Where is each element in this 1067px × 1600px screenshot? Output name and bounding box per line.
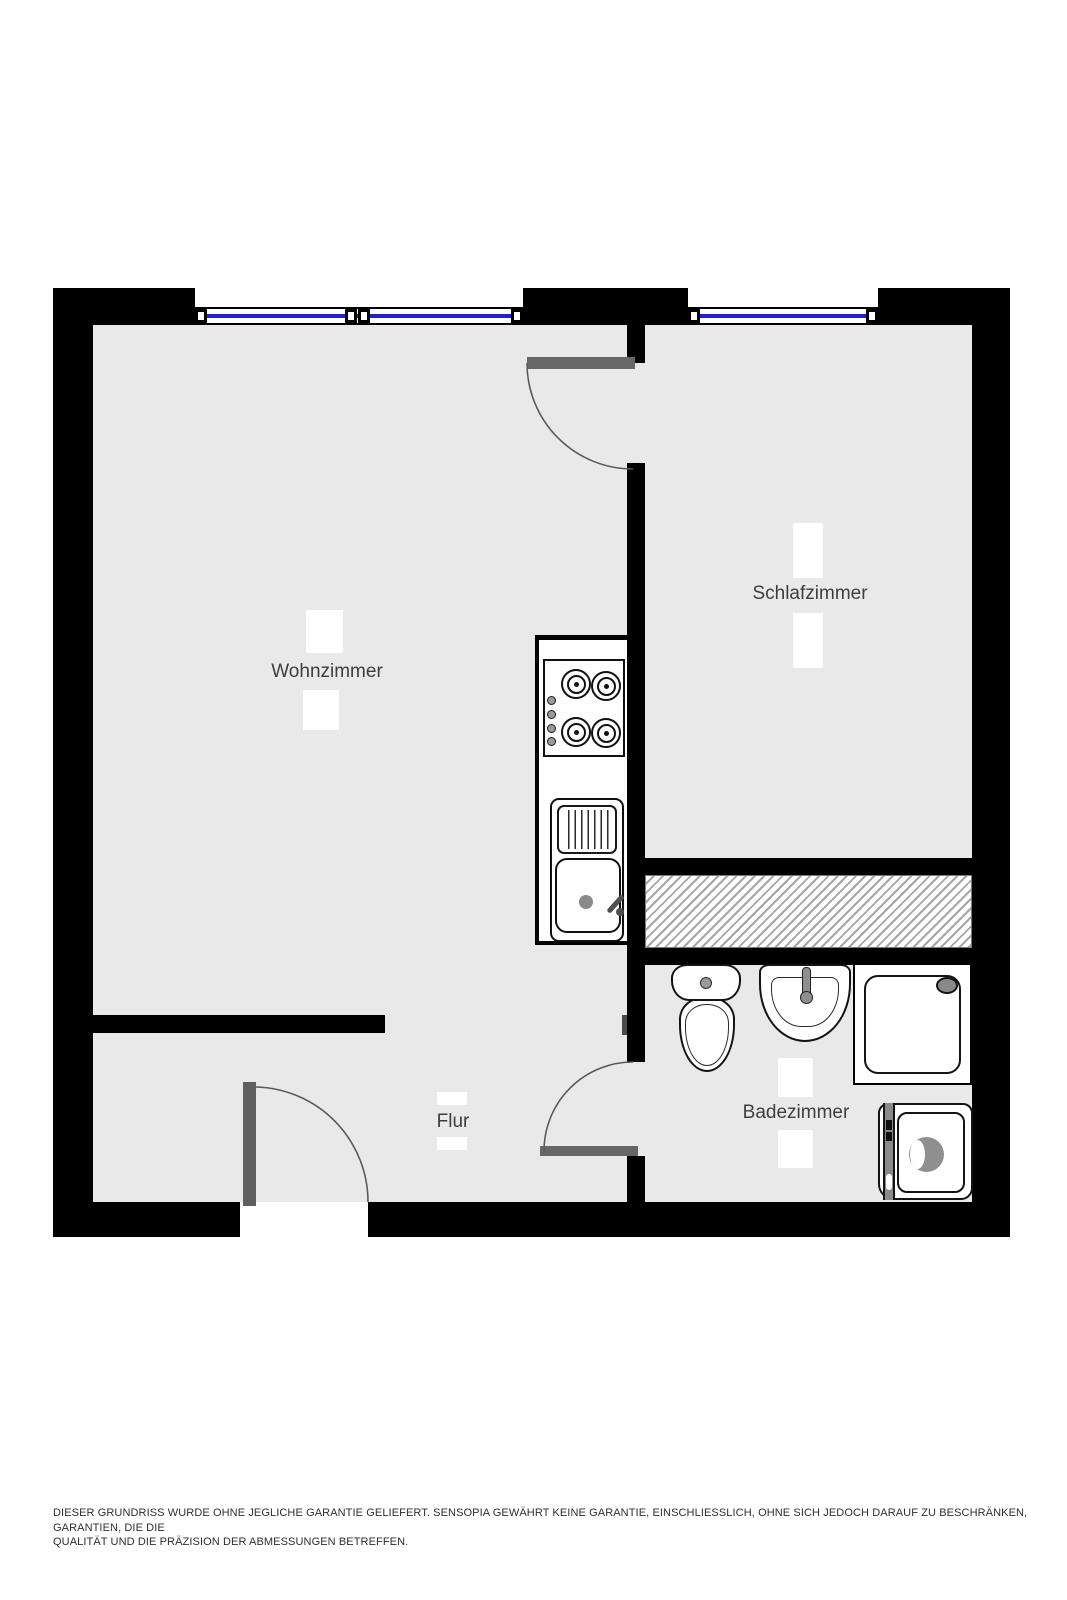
washbasin-faucet-base [800, 991, 813, 1004]
window-bracket [688, 309, 700, 323]
wall-top-middle [523, 288, 688, 325]
window-bracket [511, 309, 523, 323]
window-bracket [195, 309, 207, 323]
kitchen-faucet-base [616, 908, 624, 916]
room-label-badezimmer: Badezimmer [743, 1102, 850, 1124]
floor-area [93, 325, 972, 1202]
stove-knob [547, 724, 556, 733]
room-label-flur: Flur [437, 1111, 470, 1133]
stove-burner [561, 717, 591, 747]
window-schlafzimmer [688, 307, 878, 325]
door-leaf-schlafzimmer [527, 357, 635, 369]
wall-wohnzimmer-flur [93, 1015, 385, 1033]
stove-burner [591, 671, 621, 701]
wall-bottom-left [53, 1202, 240, 1237]
stove-burner [561, 669, 591, 699]
wall-interior-bottom [627, 1156, 645, 1202]
window-bracket [345, 309, 357, 323]
window-bracket [866, 309, 878, 323]
wall-right [972, 288, 1010, 1237]
shower-drain [936, 977, 958, 994]
wall-left [53, 288, 93, 1237]
washing-machine-drum-highlight [910, 1140, 925, 1169]
window-wohnzimmer [195, 307, 523, 325]
kitchen-sink-drain [579, 895, 593, 909]
stove-knob [547, 737, 556, 746]
stove-burner [591, 718, 621, 748]
door-leaf-entry [243, 1082, 256, 1206]
washing-machine-latch [886, 1120, 892, 1130]
label-placeholder [437, 1092, 467, 1105]
disclaimer-line-2: QUALITÄT UND DIE PRÄZISION DER ABMESSUNG… [53, 1535, 1033, 1550]
window-glass [688, 314, 878, 318]
wall-interior-middle [627, 463, 645, 1062]
disclaimer-line-1: DIESER GRUNDRISS WURDE OHNE JEGLICHE GAR… [53, 1506, 1033, 1535]
window-bracket [358, 309, 370, 323]
stove-knob [547, 696, 556, 705]
wall-bottom-right [368, 1202, 1010, 1237]
kitchen-sink-drainboard [557, 805, 617, 854]
label-placeholder [437, 1137, 467, 1150]
wall-schlafzimmer-bottom [645, 858, 972, 875]
shaft-hatched-area [645, 875, 972, 948]
washing-machine-latch [886, 1132, 892, 1141]
disclaimer-text: DIESER GRUNDRISS WURDE OHNE JEGLICHE GAR… [53, 1506, 1033, 1550]
floor-plan: Wohnzimmer Schlafzimmer Flur Badezimmer … [0, 0, 1067, 1600]
label-placeholder [778, 1130, 813, 1168]
room-label-schlafzimmer: Schlafzimmer [752, 583, 867, 605]
label-placeholder [793, 613, 823, 668]
toilet-flush-button [700, 977, 712, 989]
washing-machine-handle [886, 1174, 892, 1190]
label-placeholder [306, 610, 343, 653]
label-placeholder [793, 523, 823, 578]
stove-knob [547, 710, 556, 719]
room-label-wohnzimmer: Wohnzimmer [271, 661, 383, 683]
door-leaf-badezimmer [540, 1146, 638, 1156]
label-placeholder [303, 690, 339, 730]
label-placeholder [778, 1058, 813, 1097]
washing-machine-drum [909, 1137, 944, 1172]
